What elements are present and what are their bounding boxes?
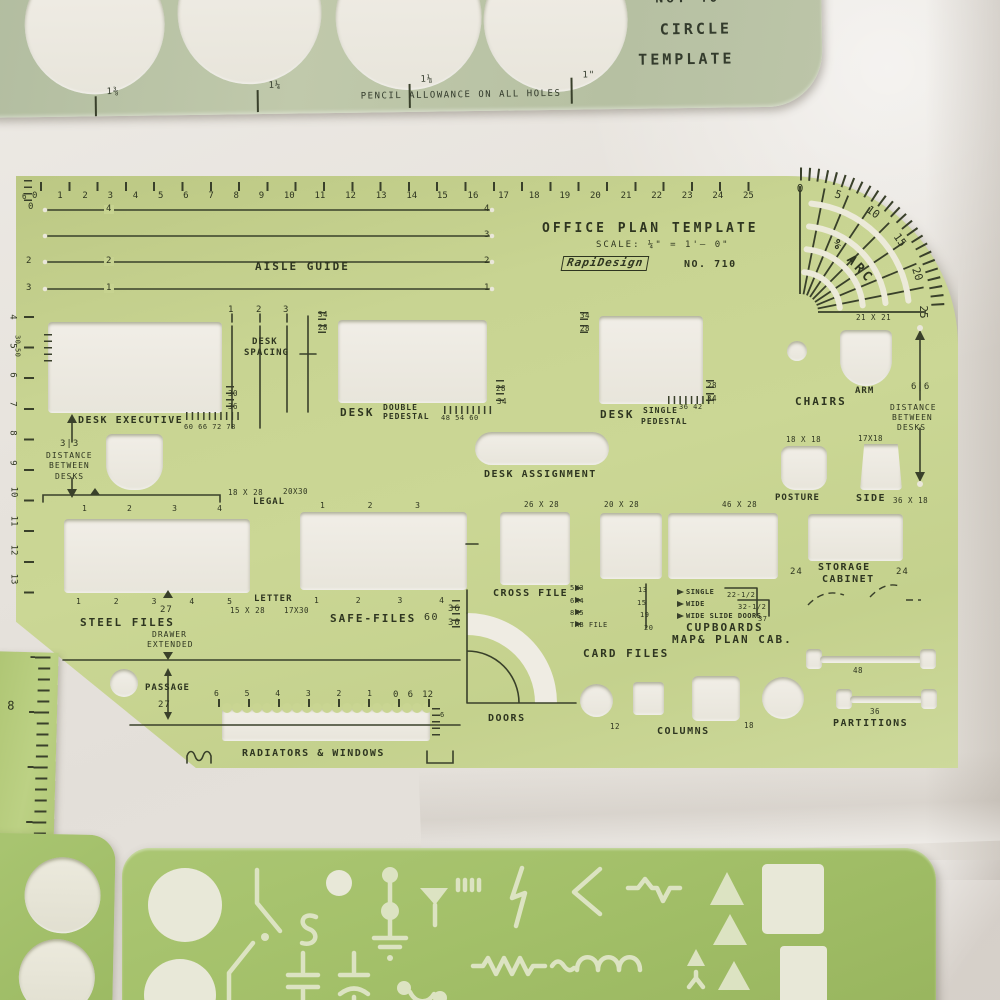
mark: 1 <box>76 597 81 606</box>
desk-double-left: 34 <box>318 311 328 319</box>
cupboard-arrow <box>677 589 684 595</box>
mark: 5 <box>227 597 232 606</box>
steel-files-value: 27 <box>160 606 173 615</box>
safe-files-label: SAFE-FILES <box>330 613 416 625</box>
card-file-row-value: 15 <box>637 600 646 607</box>
posture-size-label: 18 X 18 <box>786 436 821 444</box>
cupboard-row-value: 22-1/2 <box>727 592 755 599</box>
wave-dot <box>397 981 411 995</box>
ruler-number: 4 <box>8 314 18 319</box>
resistor-symbol <box>473 958 545 974</box>
desk-single-right: 34 <box>707 395 717 403</box>
circle-hole <box>335 0 483 91</box>
top-ruler-ticks <box>40 182 752 191</box>
steel-files-bottom-marks: 12345 <box>76 597 232 606</box>
hole-size-label: 1⅜ <box>107 88 120 98</box>
cupboards-label: CUPBOARDS <box>686 622 764 634</box>
desk-executive-label: DESK EXECUTIVE <box>78 416 183 427</box>
antenna-ball <box>382 867 398 883</box>
hole-size-label: 1¼ <box>269 82 282 92</box>
letter-size-2: 17X30 <box>284 607 309 615</box>
triangle-hole <box>710 872 744 905</box>
legal-size-2: 20X30 <box>283 488 308 496</box>
size-tick <box>95 96 97 116</box>
mark: 1 <box>82 504 87 513</box>
radiators-windows-label: RADIATORS & WINDOWS <box>242 749 385 760</box>
card-file-row-name: TAB FILE <box>570 622 608 629</box>
drawer-extended-arrow <box>163 652 173 660</box>
top-ruler-numbers: 0123456789101112131415161718192021222324… <box>32 191 754 201</box>
column-size-18: 18 <box>744 722 754 730</box>
cupboard-row-name: WIDE SLIDE DOORS <box>686 613 761 620</box>
ruler-number: 13 <box>376 191 387 201</box>
desk-double-label: DESK <box>340 407 375 419</box>
ground-dot <box>387 955 393 961</box>
card-files-label: CARD FILES <box>583 648 669 660</box>
ruler-number: 21 <box>621 191 632 201</box>
ruler-number: 8 <box>234 191 239 201</box>
drawer-extended-1: DRAWER <box>152 631 187 639</box>
scale-number: 12 <box>422 690 433 700</box>
aisle-inline-label: 2 <box>104 257 114 266</box>
mark: 2 <box>114 597 119 606</box>
circle-hole <box>177 0 323 85</box>
chairs-label: CHAIRS <box>795 396 847 408</box>
ruler-number: 2 <box>82 191 87 201</box>
ruler-number: 19 <box>559 191 570 201</box>
ruler-number: 11 <box>8 515 18 526</box>
dist-left-line1: DISTANCE <box>46 452 93 460</box>
safe-files-side: 36 <box>448 605 461 614</box>
desk-spacing-mark: 1 <box>228 306 234 315</box>
cupboard-arrow <box>677 601 684 607</box>
desk-spacing-lines <box>232 314 287 428</box>
rapidesign-logo: RapiDesign <box>561 256 650 271</box>
dist-left-line2: BETWEEN <box>49 462 90 470</box>
card-file-row-name: 8X5 <box>570 610 584 617</box>
ruler-number: 25 <box>743 191 754 201</box>
aisle-left-label: 3 <box>26 284 32 293</box>
cupboard-row-value: 32-1/2 <box>738 604 766 611</box>
aisle-right-label: 4 <box>484 205 490 214</box>
ruler-number: 9 <box>259 191 264 201</box>
desk-single-right: 28 <box>707 382 717 390</box>
window-symbol <box>427 751 453 763</box>
s-hook-symbol <box>302 916 316 944</box>
circle-hole <box>483 0 629 93</box>
office-template-scale: SCALE: ¼" = 1'– 0" <box>596 241 730 250</box>
arc-tick-label: 0 <box>797 182 804 195</box>
cupboard-row-name: SINGLE <box>686 589 714 596</box>
desk-double-left: 28 <box>318 324 328 332</box>
hole-size-label: 1" <box>582 71 595 81</box>
mark: 1 <box>320 501 325 510</box>
scale-number: 6 <box>408 690 413 700</box>
ruler-number: 10 <box>284 191 295 201</box>
partition-size-48: 48 <box>853 667 863 675</box>
inductor-symbol <box>577 957 640 970</box>
photo-of-drafting-templates: 1⅜ 1¼ 1⅛ 1" No. 40 CIRCLE TEMPLATE PENCI… <box>0 0 1000 1000</box>
pencil-allowance-note: PENCIL ALLOWANCE ON ALL HOLES <box>361 90 562 102</box>
scale-number: 3 <box>306 689 311 698</box>
desk-double-right: 28 <box>496 385 506 393</box>
cupboard-arrow <box>677 613 684 619</box>
side-ruler-number: 8 <box>7 700 16 713</box>
desk-single-type-1: SINGLE <box>643 407 678 415</box>
ruler-number: 14 <box>406 191 417 201</box>
card-file-row-name: 5X3 <box>570 585 584 592</box>
aisle-left-label: 2 <box>26 257 32 266</box>
dist-right-arrow-up <box>915 330 925 340</box>
dist-right-line2: BETWEEN <box>892 414 933 422</box>
circle-hole <box>24 0 166 95</box>
triangle-hole <box>713 914 747 945</box>
safe-files-bottom-marks: 1234 <box>314 596 444 605</box>
side-size-label: 17X18 <box>858 435 883 443</box>
ruler-number: 24 <box>712 191 723 201</box>
aisle-inline-label: 4 <box>104 205 114 214</box>
mark: 2 <box>127 504 132 513</box>
posture-chair-label: POSTURE <box>775 494 820 503</box>
aisle-guide-label: AISLE GUIDE <box>255 261 350 273</box>
circle-template: 1⅜ 1¼ 1⅛ 1" No. 40 CIRCLE TEMPLATE PENCI… <box>0 0 823 118</box>
desk-double-right: 34 <box>497 398 507 406</box>
triangle-hole <box>718 961 750 990</box>
partition-size-36: 36 <box>870 708 880 716</box>
desk-spacing-mark: 2 <box>256 306 262 315</box>
arc-tick-label: 15 <box>891 231 909 249</box>
corner-circle-hole <box>24 856 102 934</box>
hole-size-label: 1⅛ <box>420 76 433 86</box>
cupboard-row-name: WIDE <box>686 601 705 608</box>
dist-left-arrow-up <box>67 414 77 423</box>
polarized-capacitor-symbol <box>340 953 368 1000</box>
file-46x28-size: 46 X 28 <box>722 501 757 509</box>
letter-label: LETTER <box>254 595 293 604</box>
mark: 3 <box>152 597 157 606</box>
desk-single-type-2: PEDESTAL <box>641 418 688 426</box>
arc-size-label: 21 X 21 <box>856 314 891 322</box>
ruler-number: 16 <box>468 191 479 201</box>
card-file-row-value: 19 <box>640 612 649 619</box>
passage-arrow-up <box>164 668 172 676</box>
legal-bracket <box>43 495 220 502</box>
scale-number: 6 <box>214 689 219 698</box>
desk-spacing-label-2: SPACING <box>244 349 289 358</box>
ruler-number: 12 <box>8 544 18 555</box>
storage-right-value: 24 <box>896 568 909 577</box>
ruler-number: 11 <box>314 191 325 201</box>
radiator-scale-minor: 0612 <box>393 690 433 700</box>
office-template-model: NO. 710 <box>684 260 737 271</box>
door-swing-hole <box>467 613 557 703</box>
ruler-number: 13 <box>8 574 18 585</box>
ruler-number: 4 <box>133 191 138 201</box>
ruler-number: 7 <box>8 402 18 407</box>
aisle-right-label: 2 <box>484 257 490 266</box>
card-file-row-value: 20 <box>644 625 653 632</box>
ground-ball <box>381 902 399 920</box>
mark: 4 <box>217 504 222 513</box>
desk-executive-side: 36 <box>228 403 238 411</box>
corner-circle-hole <box>18 938 96 1000</box>
scale-number: 2 <box>337 689 342 698</box>
dist-left-line3: DESKS <box>55 473 84 481</box>
legal-label: LEGAL <box>253 498 285 507</box>
side-chair-label: SIDE <box>856 494 886 505</box>
circle-template-title-2: TEMPLATE <box>638 51 734 68</box>
scale-number: 5 <box>245 689 250 698</box>
circle-template-model: No. 40 <box>655 0 720 6</box>
wave-link-symbol <box>410 992 434 1000</box>
ruler-number: 20 <box>590 191 601 201</box>
desk-single-left: 34 <box>580 312 590 320</box>
side-ruler-strip: 8 <box>0 651 59 853</box>
ruler-number: 10 <box>8 486 18 497</box>
scale-number: 1 <box>367 689 372 698</box>
desk-double-bottom: 48 54 60 <box>441 415 479 422</box>
office-template-title: OFFICE PLAN TEMPLATE <box>542 222 759 236</box>
lightning-symbol <box>512 868 525 926</box>
mark: 3 <box>172 504 177 513</box>
radiator-symbol <box>187 752 211 764</box>
safe-files-side: 30 <box>448 619 461 628</box>
desk-spacing-mark: 3 <box>283 306 289 315</box>
ruler-number: 7 <box>208 191 213 201</box>
desk-double-type-2: PEDESTAL <box>383 413 430 421</box>
aisle-right-label: 3 <box>484 231 490 240</box>
top-ruler-prefix: 6 <box>22 193 27 201</box>
legal-pointer <box>90 488 100 495</box>
storage-dashed-marks <box>808 585 921 605</box>
switch-symbol <box>229 870 280 1000</box>
ruler-number: 1 <box>57 191 62 201</box>
ruler-number: 5 <box>158 191 163 201</box>
ruler-number: 22 <box>651 191 662 201</box>
left-ruler-small: 30 <box>13 335 20 344</box>
cross-file-size: 26 X 28 <box>524 501 559 509</box>
storage-size: 36 X 18 <box>893 497 928 505</box>
card-file-row-name: 6X4 <box>570 598 584 605</box>
arc-tick-label: 25 <box>917 305 930 318</box>
partitions-label: PARTITIONS <box>833 719 908 730</box>
aisle-inline-label: 1 <box>104 284 114 293</box>
mark: 4 <box>189 597 194 606</box>
electrical-symbols <box>122 848 936 1000</box>
storage-label-2: CABINET <box>822 575 875 586</box>
ruler-number: 6 <box>8 373 18 378</box>
legal-size-1: 18 X 28 <box>228 489 263 497</box>
small-y-symbol <box>689 972 703 987</box>
steel-files-top-marks: 1234 <box>82 504 222 513</box>
scale-number: 4 <box>275 689 280 698</box>
side-ruler-major-ticks <box>25 656 50 848</box>
door-link-line <box>466 544 478 613</box>
passage-label: PASSAGE <box>145 684 190 693</box>
dist-right-arrow-down <box>915 472 925 482</box>
mark: 2 <box>368 501 373 510</box>
size-tick <box>570 78 572 104</box>
capacitor-symbol <box>288 953 318 1000</box>
dist-right-line1: DISTANCE <box>890 404 937 412</box>
small-triangle-hole <box>687 949 705 966</box>
funnel-symbol <box>420 888 448 905</box>
steel-files-label: STEEL FILES <box>80 617 175 629</box>
size-tick <box>257 90 259 112</box>
desk-single-bottom: 36 42 <box>679 404 703 411</box>
aisle-right-label: 1 <box>484 284 490 293</box>
dist-right-value: 6|6 <box>911 383 930 392</box>
arc-tick-label: 20 <box>909 266 925 283</box>
switch-dot <box>261 933 269 941</box>
ruler-number: 3 <box>108 191 113 201</box>
desk-executive-bottom-scale: 60 66 72 78 <box>184 424 236 431</box>
dist-left-arrow-down <box>67 489 77 498</box>
card-file-row-value: 13 <box>638 587 647 594</box>
letter-size-1: 15 X 28 <box>230 607 265 615</box>
desk-executive-side: 30 <box>228 390 238 398</box>
ruler-number: 8 <box>8 431 18 436</box>
registration-dots <box>43 208 923 487</box>
storage-label-1: STORAGE <box>818 563 871 574</box>
radiator-scale-major: 654321 <box>214 689 372 698</box>
circle-template-title-1: CIRCLE <box>660 21 732 38</box>
storage-left-value: 24 <box>790 568 803 577</box>
radiator-side-value: 6 <box>440 712 445 719</box>
scale-number: 0 <box>393 690 398 700</box>
arm-chair-label: ARM <box>855 387 874 396</box>
ruler-number: 9 <box>8 460 18 465</box>
ruler-number: 6 <box>183 191 188 201</box>
mark: 3 <box>397 596 402 605</box>
mark: 1 <box>314 596 319 605</box>
passage-arrow-down <box>164 712 172 720</box>
radiator-scale-ticks <box>218 699 434 707</box>
tick-marks-symbol <box>458 880 479 890</box>
desk-assignment-label: DESK ASSIGNMENT <box>484 470 597 481</box>
corner-template-piece <box>0 833 116 1000</box>
desk-single-label: DESK <box>600 409 635 421</box>
passage-value: 27 <box>158 701 171 710</box>
percent-arc-protractor: 0 5 10 15 20 25 % ARC <box>797 174 938 319</box>
big-s-symbol <box>574 869 600 914</box>
desk-spacing-label-1: DESK <box>252 338 278 347</box>
file-20x28-size: 20 X 28 <box>604 501 639 509</box>
cross-file-label: CROSS FILE <box>493 589 568 600</box>
ruler-number: 18 <box>529 191 540 201</box>
left-ruler-small: 50 <box>13 348 20 357</box>
mark: 2 <box>356 596 361 605</box>
arc-tick-label: 5 <box>833 187 843 201</box>
map-plan-cab-label: MAP& PLAN CAB. <box>672 634 793 646</box>
mark: 3 <box>415 501 420 510</box>
doors-label: DOORS <box>488 714 526 725</box>
columns-label: COLUMNS <box>657 727 710 738</box>
dist-right-line3: DESKS <box>897 424 926 432</box>
mark: 4 <box>439 596 444 605</box>
drawer-extended-2: EXTENDED <box>147 641 194 649</box>
safe-files-top-marks: 123 <box>320 501 420 510</box>
ruler-number: 17 <box>498 191 509 201</box>
ruler-number: 12 <box>345 191 356 201</box>
left-ruler-ticks <box>24 316 34 594</box>
ruler-number: 23 <box>682 191 693 201</box>
pulse-symbol <box>628 879 680 901</box>
column-size-12: 12 <box>610 723 620 731</box>
desk-single-left: 28 <box>580 325 590 333</box>
electrical-symbols-template <box>122 848 936 1000</box>
inductor-lead-symbol <box>552 962 574 971</box>
dist-left-value: 3|3 <box>60 440 79 449</box>
ruler-number: 15 <box>437 191 448 201</box>
aisle-guide-lines <box>45 210 492 289</box>
spacing-scale-line <box>300 316 316 412</box>
ruler-number: 0 <box>32 191 37 201</box>
aisle-left-label: 0 <box>28 203 34 212</box>
ground-symbol <box>374 920 406 947</box>
safe-files-value: 60 <box>424 613 439 624</box>
